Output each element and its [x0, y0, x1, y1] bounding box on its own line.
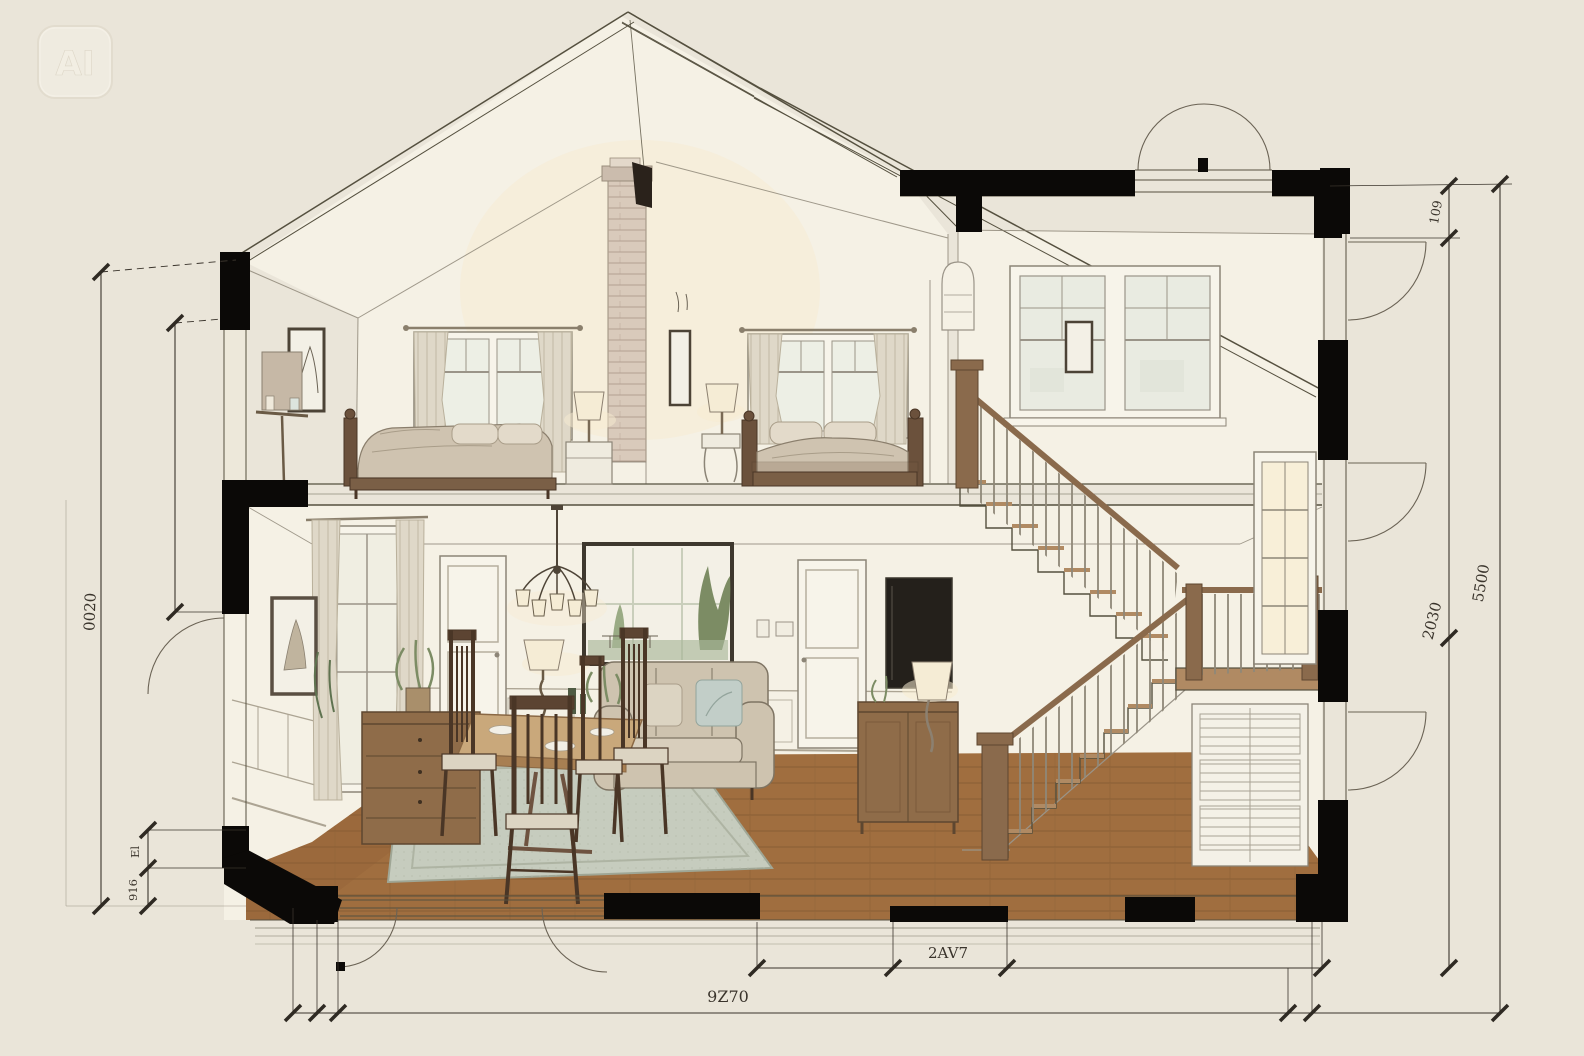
arched-niche	[942, 262, 974, 330]
pillow	[644, 684, 682, 726]
media-console	[858, 662, 958, 834]
cut-right-wall	[1320, 168, 1350, 234]
pillow	[498, 424, 542, 444]
cut-top-band	[900, 170, 1135, 196]
dim-label-left-step-upper: El	[128, 846, 142, 858]
cut-roof-left	[220, 252, 250, 330]
dim-label-bottom-outer: 9Z70	[707, 987, 749, 1006]
chimney	[602, 158, 652, 484]
dim-label-left-outer: 0020	[80, 592, 99, 631]
upper-right-room	[1004, 266, 1226, 426]
door-right	[798, 560, 866, 748]
ai-watermark-icon: AI	[38, 26, 112, 98]
wall-art-frame-small	[1066, 322, 1092, 372]
newel-bottom	[982, 742, 1008, 860]
buffet-lamp	[524, 640, 564, 670]
table-lamp	[706, 384, 738, 412]
table-lamp	[574, 392, 604, 420]
dim-label-left-step-lower: 916	[126, 879, 140, 901]
ai-watermark-label: AI	[56, 44, 95, 84]
understair-shelves	[1192, 704, 1308, 866]
newel-top	[956, 368, 978, 488]
drawing-svg: AI	[0, 0, 1584, 1056]
console-lamp	[912, 662, 952, 700]
wall-art-frame	[670, 331, 690, 405]
pillow	[696, 680, 742, 726]
architectural-section-drawing: AI	[0, 0, 1584, 1056]
pillow	[452, 424, 498, 444]
dim-label-bottom-inner: 2AV7	[928, 944, 968, 962]
glazed-door	[1254, 452, 1316, 664]
wall-artwork-large	[584, 544, 732, 664]
